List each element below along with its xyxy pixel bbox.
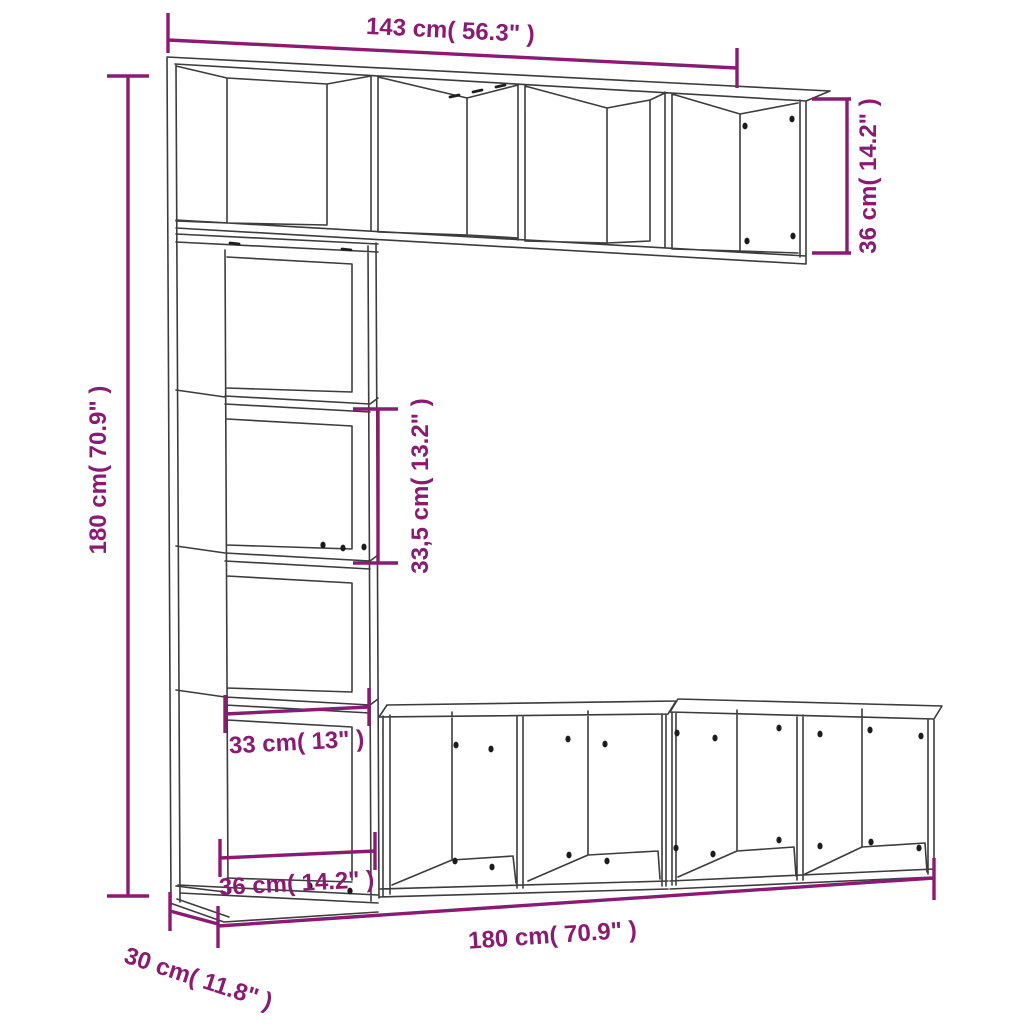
book-cabinet (170, 234, 379, 922)
wall-shelf-unit (167, 57, 830, 906)
dimension-cabinet-height: 180 cm( 70.9" ) (85, 75, 149, 897)
dimension-depth: 30 cm( 11.8" ) (121, 892, 276, 1016)
dimension-label-cabinet-width: 36 cm( 14.2" ) (218, 866, 375, 901)
tv-bench (379, 699, 942, 897)
dimension-line (812, 98, 851, 254)
dimension-label-cabinet-height: 180 cm( 70.9" ) (85, 386, 112, 555)
diagram-canvas: 143 cm( 56.3" ) 36 cm( 14.2" ) 180 cm( 7… (0, 0, 1024, 1024)
dimension-shelf-width: 143 cm( 56.3" ) (168, 13, 737, 88)
dimension-line (353, 408, 398, 564)
dimension-line (107, 75, 149, 897)
dimension-label-compartment-width: 33 cm( 13" ) (228, 725, 365, 759)
product-dimension-diagram: 143 cm( 56.3" ) 36 cm( 14.2" ) 180 cm( 7… (0, 0, 1024, 1024)
dimension-label-shelf-width: 143 cm( 56.3" ) (365, 13, 535, 48)
dimension-shelf-height: 36 cm( 14.2" ) (812, 98, 882, 254)
dimension-label-shelf-height: 36 cm( 14.2" ) (855, 98, 882, 253)
dimension-label-depth: 30 cm( 11.8" ) (121, 942, 276, 1015)
dimension-label-bench-width: 180 cm( 70.9" ) (467, 916, 637, 954)
dimension-label-compartment-height: 33,5 cm( 13.2" ) (407, 398, 434, 573)
